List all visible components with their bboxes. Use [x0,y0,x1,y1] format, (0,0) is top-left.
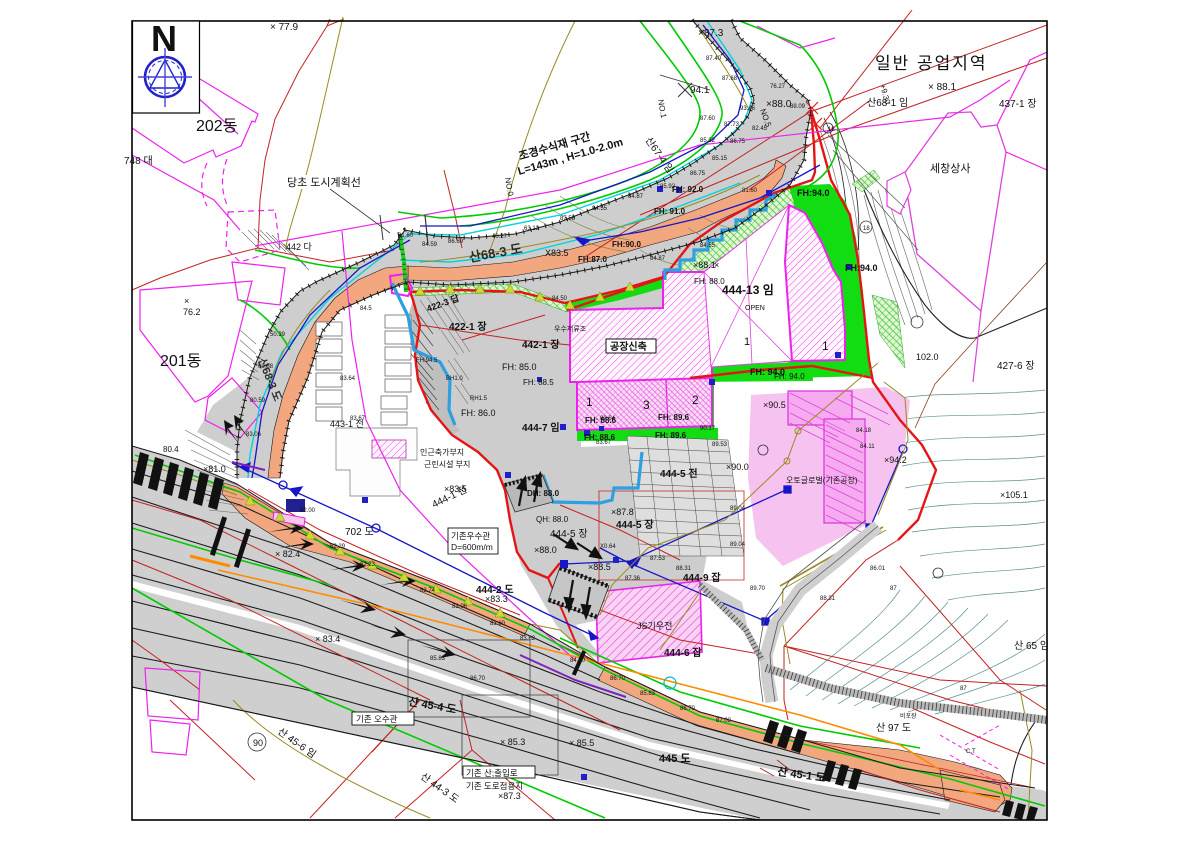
svg-text:87.36: 87.36 [625,576,641,582]
svg-text:444-5 전: 444-5 전 [660,467,698,480]
svg-text:FH: 88.0: FH: 88.0 [694,277,725,286]
svg-text:OPEN: OPEN [745,305,765,312]
svg-text:JS기우전: JS기우전 [637,621,672,631]
svg-text:FH: 89.6: FH: 89.6 [655,431,687,440]
svg-text:×105.1: ×105.1 [1000,490,1028,500]
svg-text:83.67: 83.67 [350,416,366,422]
svg-text:702 도: 702 도 [345,527,374,538]
svg-text:87.58: 87.58 [560,216,576,222]
svg-text:FH: 92.0: FH: 92.0 [672,185,704,194]
svg-text:84.50: 84.50 [570,658,586,664]
svg-text:80.4: 80.4 [163,445,179,454]
svg-text:86.75: 86.75 [690,171,706,177]
svg-text:×87.8: ×87.8 [611,507,634,517]
svg-text:86.75: 86.75 [730,139,746,145]
svg-text:기존 도로점용지: 기존 도로점용지 [466,781,523,791]
svg-text:일반 공업지역: 일반 공업지역 [875,54,988,73]
svg-text:427-6 장: 427-6 장 [997,360,1035,372]
svg-text:201동: 201동 [160,353,201,370]
svg-text:산68-1 임: 산68-1 임 [867,96,908,109]
svg-text:83.06: 83.06 [452,604,468,610]
svg-text:444-5 장: 444-5 장 [550,528,588,540]
svg-text:×90.5: ×90.5 [763,400,786,410]
svg-text:×: × [714,260,719,270]
svg-text:62.29: 62.29 [330,544,346,550]
svg-text:444-7 임: 444-7 임 [522,421,560,434]
svg-text:85.83: 85.83 [640,691,656,697]
svg-text:90: 90 [253,738,263,748]
svg-text:FH:94.0: FH:94.0 [845,263,878,273]
svg-text:× 83.4: × 83.4 [315,634,340,644]
svg-text:50.39: 50.39 [270,332,286,338]
svg-text:88.31: 88.31 [676,566,692,572]
svg-text:1: 1 [586,395,593,409]
svg-text:76.27: 76.27 [770,84,786,90]
svg-text:× 88.1: × 88.1 [928,82,957,93]
svg-text:× 85.5: × 85.5 [569,738,594,748]
svg-text:84.59: 84.59 [422,242,438,248]
svg-text:84.5: 84.5 [360,306,372,312]
svg-text:×: × [184,296,189,306]
svg-text:80.59: 80.59 [250,398,266,404]
svg-text:DH: 88.0: DH: 88.0 [527,489,560,498]
svg-text:FH:94.0: FH:94.0 [797,188,830,198]
svg-text:76.2: 76.2 [183,307,201,317]
svg-text:FH: 86.0: FH: 86.0 [461,408,496,418]
svg-text:87.73: 87.73 [724,122,740,128]
svg-text:60.58: 60.58 [258,364,274,370]
svg-text:85.92: 85.92 [660,184,676,190]
svg-text:442 다: 442 다 [286,242,313,252]
svg-text:83.64: 83.64 [600,416,616,422]
svg-text:84.18: 84.18 [856,428,872,434]
svg-text:444-6 잡: 444-6 잡 [664,647,702,659]
svg-text:86.69: 86.69 [448,239,464,245]
svg-text:FH: 91.0: FH: 91.0 [654,207,686,216]
svg-text:FH: 88.5: FH: 88.5 [523,378,554,387]
svg-text:444-5 장: 444-5 장 [616,518,654,531]
svg-text:89.53: 89.53 [712,442,728,448]
svg-text:84.50: 84.50 [552,296,568,302]
svg-text:비포장: 비포장 [900,712,917,720]
svg-text:83.06: 83.06 [246,432,262,438]
svg-text:86.70: 86.70 [610,676,626,682]
svg-text:87: 87 [960,686,967,692]
svg-text:62.23: 62.23 [360,562,376,568]
svg-text:세창상사: 세창상사 [930,162,970,175]
svg-text:기존 오수관: 기존 오수관 [356,714,398,724]
svg-text:2: 2 [692,393,699,407]
svg-text:×94.2: ×94.2 [884,455,907,465]
svg-text:RH1.5: RH1.5 [470,396,488,402]
svg-text:40.27: 40.27 [492,234,508,240]
svg-text:82.74: 82.74 [420,588,436,594]
svg-text:N: N [151,18,177,59]
svg-text:QH: 88.0: QH: 88.0 [536,515,569,524]
svg-text:산 97 도: 산 97 도 [876,722,911,734]
svg-text:X0.64: X0.64 [600,544,616,550]
svg-text:89.04: 89.04 [730,542,746,548]
svg-text:102.0: 102.0 [916,352,939,362]
svg-text:422-1 장: 422-1 장 [449,320,487,333]
svg-text:83.62: 83.62 [520,636,536,642]
svg-text:18: 18 [863,226,870,232]
svg-text:444-13 임: 444-13 임 [722,283,774,297]
svg-text:84.11: 84.11 [860,444,875,450]
svg-text:87.02: 87.02 [716,718,732,724]
svg-text:FH:94.5: FH:94.5 [416,358,438,364]
svg-text:87.68: 87.68 [722,76,738,82]
svg-text:×88.0: ×88.0 [766,99,792,110]
svg-text:94.1: 94.1 [690,85,710,96]
svg-text:FH: 94.0: FH: 94.0 [750,367,785,377]
svg-text:FH:90.0: FH:90.0 [612,240,641,249]
svg-text:1: 1 [822,339,829,353]
svg-text:81.60: 81.60 [742,188,758,194]
svg-text:1: 1 [744,336,750,348]
svg-text:×87.3: ×87.3 [698,28,724,39]
svg-text:82.00: 82.00 [300,508,316,514]
svg-text:기존 산;출입로: 기존 산;출입로 [466,768,518,778]
svg-text:18: 18 [828,127,835,133]
svg-text:FH:87.0: FH:87.0 [578,255,607,264]
svg-text:인근축가부지: 인근축가부지 [420,447,464,457]
svg-text:FH: 85.0: FH: 85.0 [502,362,537,372]
svg-text:×88.1: ×88.1 [693,260,716,270]
svg-text:× 85.3: × 85.3 [500,737,525,747]
svg-text:87.40: 87.40 [706,56,722,62]
svg-text:85.83: 85.83 [430,656,446,662]
svg-text:84.87: 84.87 [628,194,644,200]
svg-text:437-1 장: 437-1 장 [999,98,1037,110]
svg-text:444-2 도: 444-2 도 [476,584,514,596]
svg-text:442-1 장: 442-1 장 [522,338,560,351]
svg-text:444-9 잡: 444-9 잡 [683,572,721,584]
svg-text:63.13: 63.13 [524,226,540,232]
svg-text:83.60: 83.60 [490,621,506,627]
svg-text:× 82.4: × 82.4 [275,549,300,559]
svg-text:84.55: 84.55 [700,243,716,249]
svg-text:당초 도시계획선: 당초 도시계획선 [287,176,361,189]
svg-text:87.53: 87.53 [650,556,666,562]
svg-text:85.15: 85.15 [712,156,728,162]
svg-text:84.55: 84.55 [592,206,608,212]
svg-text:×90.0: ×90.0 [726,462,749,472]
svg-text:기존우수관: 기존우수관 [451,531,490,541]
svg-text:87.60: 87.60 [700,116,716,122]
svg-text:82.45: 82.45 [752,126,768,132]
svg-text:83.67: 83.67 [596,440,612,446]
svg-text:공장신축: 공장신축 [610,340,647,353]
svg-text:BH1.0: BH1.0 [446,376,463,382]
svg-text:87: 87 [890,586,897,592]
svg-text:89.70: 89.70 [750,586,766,592]
svg-text:93.46: 93.46 [740,106,756,112]
svg-text:D=600m/m: D=600m/m [451,542,493,552]
svg-text:85.32: 85.32 [700,138,716,144]
svg-text:81.60: 81.60 [398,233,414,239]
svg-text:×88.5: ×88.5 [588,562,611,572]
svg-text:C.T: C.T [966,749,976,755]
svg-text:89.04: 89.04 [730,506,746,512]
svg-text:오토글로벌(기존공장): 오토글로벌(기존공장) [786,475,858,485]
svg-text:× 77.9: × 77.9 [270,22,299,33]
svg-text:×81.0: ×81.0 [203,464,226,474]
svg-text:88.09: 88.09 [790,104,806,110]
svg-text:산 65 임: 산 65 임 [1014,639,1049,652]
svg-text:84.87: 84.87 [650,256,666,262]
svg-text:×87.3: ×87.3 [498,791,521,801]
svg-text:748 대: 748 대 [124,155,153,167]
svg-text:202동: 202동 [196,118,237,135]
svg-text:근린시설 부지: 근린시설 부지 [424,459,470,469]
svg-text:88.31: 88.31 [820,596,836,602]
svg-text:86.01: 86.01 [870,566,886,572]
svg-text:X83.5: X83.5 [545,248,569,258]
svg-text:86.70: 86.70 [470,676,486,682]
svg-text:83.64: 83.64 [340,376,356,382]
svg-text:445 도: 445 도 [659,752,691,765]
svg-text:86.70: 86.70 [680,706,696,712]
svg-text:우수저류조: 우수저류조 [554,324,587,333]
svg-text:FH: 89.6: FH: 89.6 [658,413,690,422]
svg-text:90.17: 90.17 [700,426,716,432]
svg-text:×88.0: ×88.0 [534,545,557,555]
svg-text:3: 3 [643,398,650,412]
